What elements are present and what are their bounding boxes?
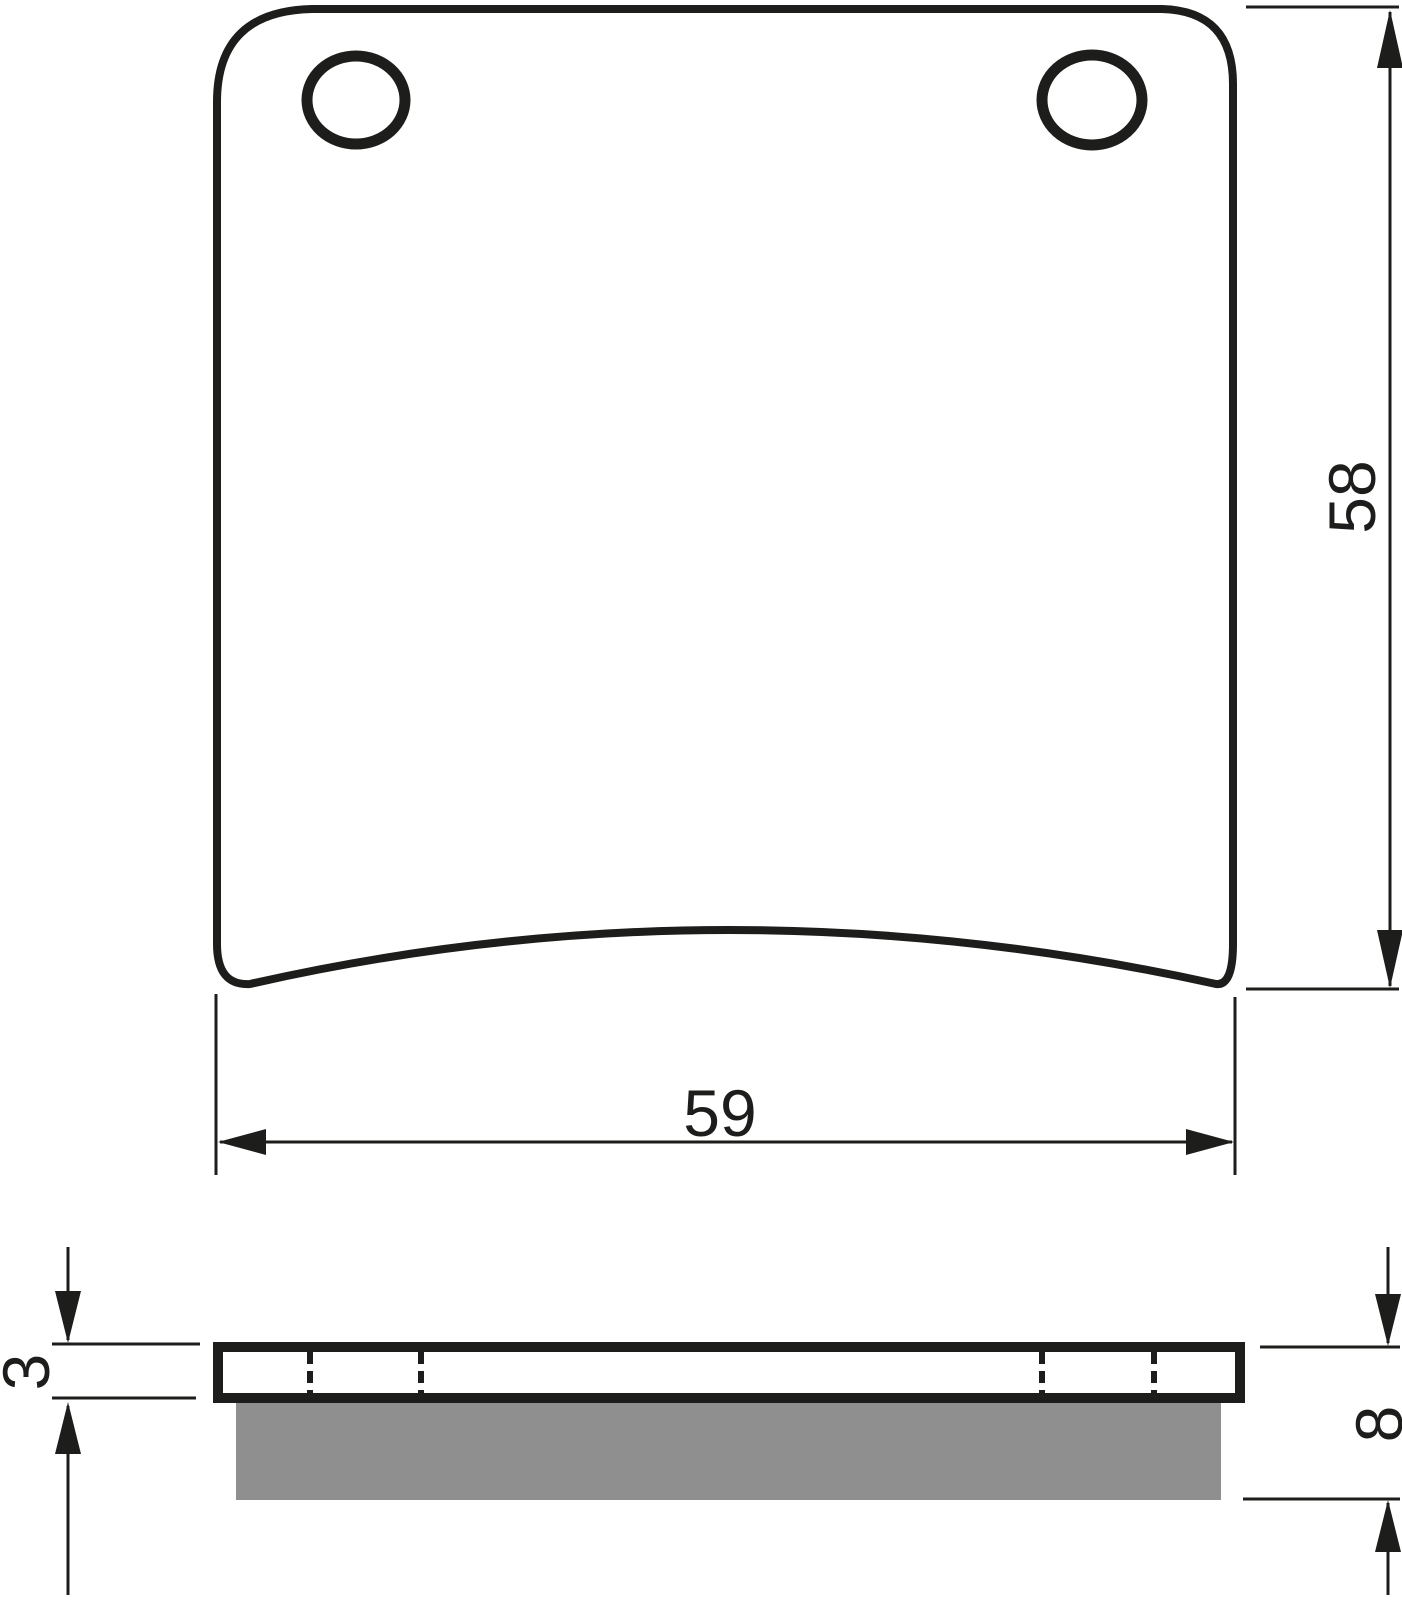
arrowhead-down-icon xyxy=(1375,1294,1401,1346)
mounting-hole-left xyxy=(307,56,405,144)
friction-material-side xyxy=(236,1403,1221,1500)
arrowhead-left-icon xyxy=(218,1129,266,1155)
dimension-plate-thickness: 3 xyxy=(0,1247,200,1595)
arrowhead-right-icon xyxy=(1186,1129,1234,1155)
brake-pad-technical-drawing: 58 59 xyxy=(0,0,1402,1600)
drawing-page: 58 59 xyxy=(0,0,1402,1600)
pad-outline xyxy=(217,9,1233,984)
mounting-hole-right xyxy=(1042,55,1142,145)
arrowhead-up-icon xyxy=(1375,1500,1401,1552)
dimension-total-thickness: 8 xyxy=(1243,1247,1402,1595)
arrowhead-down-icon xyxy=(55,1291,81,1343)
dimension-label-total: 8 xyxy=(1342,1406,1402,1443)
arrowhead-down-icon xyxy=(1377,930,1402,988)
dimension-label-width: 59 xyxy=(683,1076,756,1150)
dimension-label-height: 58 xyxy=(1315,460,1389,533)
dimension-pad-width: 59 xyxy=(216,994,1235,1175)
backing-plate-side xyxy=(218,1347,1240,1398)
front-view xyxy=(217,9,1233,984)
arrowhead-up-icon xyxy=(55,1402,81,1454)
dimension-pad-height: 58 xyxy=(1246,7,1402,989)
dimension-label-plate: 3 xyxy=(0,1354,63,1391)
arrowhead-up-icon xyxy=(1377,10,1402,68)
side-view xyxy=(218,1347,1240,1500)
